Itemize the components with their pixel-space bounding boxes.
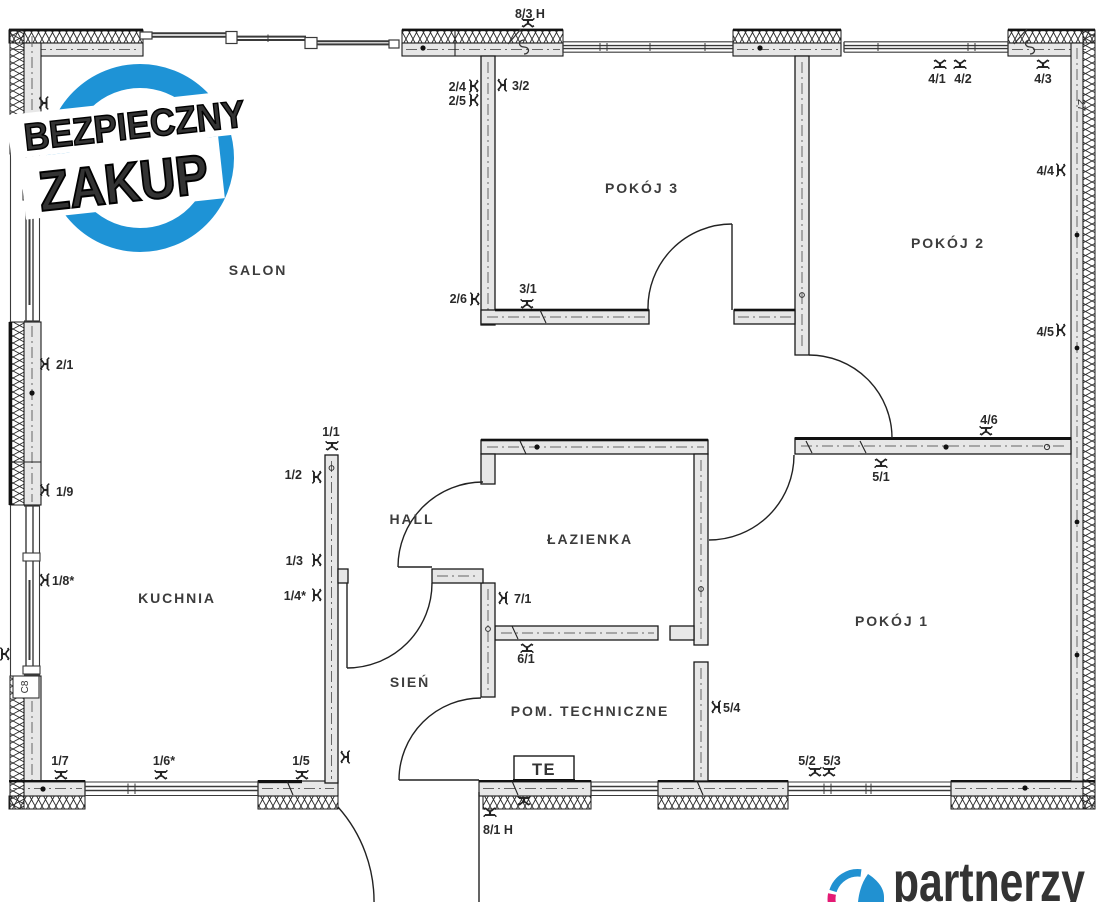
svg-text:3/2: 3/2 (512, 79, 529, 93)
svg-text:SALON: SALON (229, 262, 288, 278)
svg-text:ŁAZIENKA: ŁAZIENKA (547, 531, 633, 547)
svg-text:4/5: 4/5 (1037, 325, 1054, 339)
svg-text:5/1: 5/1 (872, 470, 889, 484)
svg-text:1/9: 1/9 (56, 485, 73, 499)
svg-text:6/1: 6/1 (517, 652, 534, 666)
svg-text:4/2: 4/2 (954, 72, 971, 86)
svg-text:1/6*: 1/6* (153, 754, 175, 768)
svg-text:27: 27 (1075, 99, 1087, 111)
svg-text:5/3: 5/3 (823, 754, 840, 768)
svg-text:3/1: 3/1 (519, 282, 536, 296)
svg-text:4/1: 4/1 (928, 72, 945, 86)
svg-text:5/2: 5/2 (798, 754, 815, 768)
svg-text:4/6: 4/6 (980, 413, 997, 427)
svg-text:2/4: 2/4 (449, 80, 466, 94)
svg-text:2/1: 2/1 (56, 358, 73, 372)
svg-text:7/1: 7/1 (514, 592, 531, 606)
svg-text:POM. TECHNICZNE: POM. TECHNICZNE (511, 703, 669, 719)
svg-text:TE: TE (532, 761, 556, 779)
svg-text:2/5: 2/5 (449, 94, 466, 108)
svg-text:SIEŃ: SIEŃ (390, 674, 430, 690)
svg-text:4/3: 4/3 (1034, 72, 1051, 86)
svg-text:1/5: 1/5 (292, 754, 309, 768)
svg-text:1/2: 1/2 (285, 468, 302, 482)
svg-text:KUCHNIA: KUCHNIA (138, 590, 216, 606)
svg-text:POKÓJ 1: POKÓJ 1 (855, 612, 929, 629)
svg-text:POKÓJ 2: POKÓJ 2 (911, 234, 985, 251)
svg-text:1/4*: 1/4* (284, 589, 306, 603)
svg-text:1/8*: 1/8* (52, 574, 74, 588)
svg-text:1/3: 1/3 (286, 554, 303, 568)
svg-text:2/6: 2/6 (450, 292, 467, 306)
svg-text:partnerzy: partnerzy (893, 850, 1085, 902)
svg-text:4/4: 4/4 (1037, 164, 1054, 178)
svg-text:1/7: 1/7 (51, 754, 68, 768)
svg-text:8/3 H: 8/3 H (515, 7, 545, 21)
svg-text:1/1: 1/1 (322, 425, 339, 439)
svg-text:C8: C8 (20, 680, 31, 693)
svg-text:HALL: HALL (390, 511, 435, 527)
svg-text:POKÓJ 3: POKÓJ 3 (605, 179, 679, 196)
svg-text:5/4: 5/4 (723, 701, 740, 715)
svg-text:8/1 H: 8/1 H (483, 823, 513, 837)
